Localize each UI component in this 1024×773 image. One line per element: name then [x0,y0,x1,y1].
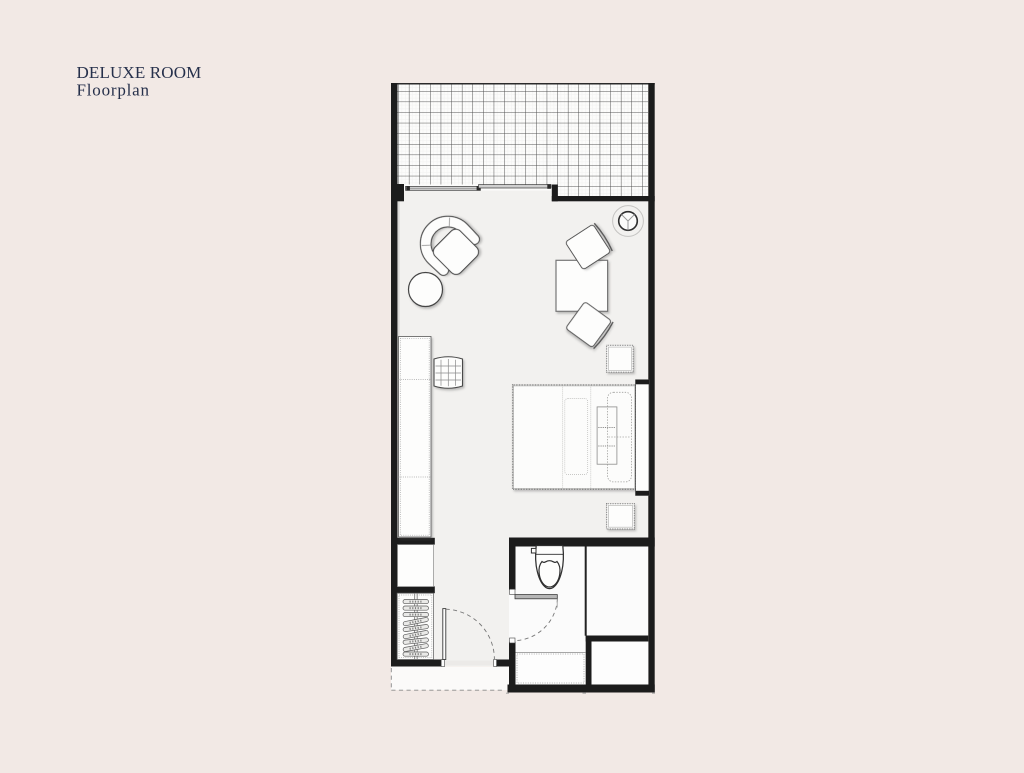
svg-text:DELUXE ROOM: DELUXE ROOM [77,63,202,82]
svg-text:Floorplan: Floorplan [77,81,150,100]
